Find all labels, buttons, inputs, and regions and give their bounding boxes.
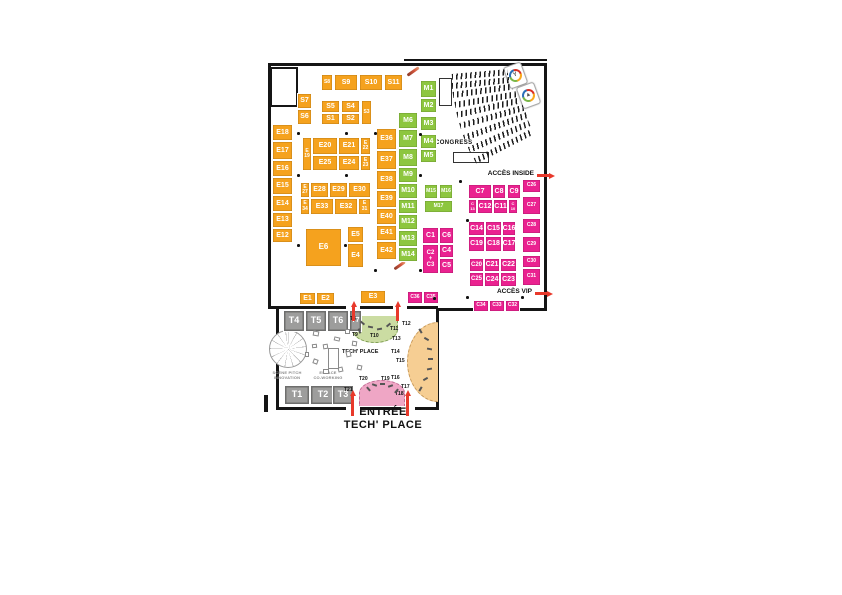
coworking-furniture <box>312 358 318 364</box>
coworking-furniture <box>328 348 339 369</box>
coworking-furniture <box>312 344 317 349</box>
booth-E4[interactable]: E4 <box>347 243 364 268</box>
booth-E22[interactable]: E22 <box>360 137 371 155</box>
booth-E37[interactable]: E37 <box>376 150 397 170</box>
pillar-dot <box>345 132 348 135</box>
booth-C5[interactable]: C5 <box>439 258 454 274</box>
pitch-stage-circle <box>269 330 307 368</box>
booth-E32[interactable]: E32 <box>334 198 358 215</box>
floor-plan: Y ▲ CONGRESS ACCÈS INSIDE ACCÈS VIP TECH… <box>0 0 842 595</box>
booth-E23[interactable]: E23 <box>360 155 371 171</box>
coworking-furniture <box>357 365 363 371</box>
booth-M1[interactable]: M1 <box>420 80 437 98</box>
booth-C4[interactable]: C4 <box>439 244 454 258</box>
booth-M17[interactable]: M17 <box>424 200 453 213</box>
booth-label-T15[interactable]: T15 <box>396 358 405 364</box>
booth-label-T9[interactable]: T9 <box>352 332 358 338</box>
booth-M8[interactable]: M8 <box>398 148 418 167</box>
booth-C13[interactable]: C13 <box>468 199 477 214</box>
pillar-dot <box>419 174 422 177</box>
booth-C34[interactable]: C34 <box>473 300 489 312</box>
booth-E18[interactable]: E18 <box>272 124 293 141</box>
pillar-dot <box>419 269 422 272</box>
booth-M4[interactable]: M4 <box>420 134 437 149</box>
coworking-furniture <box>305 352 309 357</box>
booth-M15[interactable]: M15 <box>424 184 438 199</box>
booth-C25[interactable]: C25 <box>469 272 484 287</box>
booth-C2-C3[interactable]: C2+C3 <box>422 244 439 274</box>
booth-M2[interactable]: M2 <box>420 98 437 113</box>
booth-C6[interactable]: C6 <box>439 227 454 244</box>
booth-C11[interactable]: C11 <box>493 199 508 214</box>
booth-C14[interactable]: C14 <box>468 221 485 236</box>
pillar-dot <box>344 244 347 247</box>
scene-pitch-line2: INNOVATION <box>262 375 312 380</box>
booth-C30[interactable]: C30 <box>522 255 541 268</box>
tech-place-zone-orange[interactable] <box>407 322 438 402</box>
booth-E16[interactable]: E16 <box>272 160 293 177</box>
booth-E21[interactable]: E21 <box>338 137 360 155</box>
pillar-dot <box>374 132 377 135</box>
booth-S7[interactable]: S7 <box>297 93 312 109</box>
booth-C31[interactable]: C31 <box>522 268 541 286</box>
booth-label-T20[interactable]: T20 <box>359 376 368 382</box>
entrance-arrow-icon <box>404 390 411 416</box>
booth-C24[interactable]: C24 <box>484 272 500 287</box>
booth-C35[interactable]: C35 <box>423 291 439 304</box>
booth-M3[interactable]: M3 <box>420 116 437 131</box>
booth-label-T14[interactable]: T14 <box>391 349 400 355</box>
booth-T5[interactable]: T5 <box>305 310 327 332</box>
booth-C15[interactable]: C15 <box>485 221 502 236</box>
booth-C33[interactable]: C33 <box>489 300 505 312</box>
booth-M6[interactable]: M6 <box>398 112 418 129</box>
booth-E41[interactable]: E41 <box>376 225 397 241</box>
booth-S5[interactable]: S5 <box>321 100 340 113</box>
booth-E1[interactable]: E1 <box>299 292 316 305</box>
entrance-arrow-icon <box>350 301 357 321</box>
booth-C32[interactable]: C32 <box>505 300 520 312</box>
booth-C8[interactable]: C8 <box>492 184 506 199</box>
booth-E34[interactable]: E34 <box>300 198 310 215</box>
booth-C19[interactable]: C19 <box>468 236 485 252</box>
entrance-arrow-icon <box>394 301 401 321</box>
booth-E6[interactable]: E6 <box>305 228 342 267</box>
booth-C36[interactable]: C36 <box>407 291 423 304</box>
booth-C17[interactable]: C17 <box>502 236 516 252</box>
booth-M12[interactable]: M12 <box>398 214 418 230</box>
coworking-furniture <box>345 351 351 358</box>
pillar-dot <box>466 296 469 299</box>
booth-E15[interactable]: E15 <box>272 177 293 195</box>
booth-C23[interactable]: C23 <box>500 272 517 287</box>
pillar-dot <box>297 132 300 135</box>
booth-C29[interactable]: C29 <box>522 236 541 253</box>
pillar-dot <box>433 297 436 300</box>
booth-C16[interactable]: C16 <box>502 221 516 236</box>
congress-label: CONGRESS <box>435 140 473 146</box>
wall-mid-2 <box>360 306 393 309</box>
booth-C26[interactable]: C26 <box>522 179 541 193</box>
booth-S4[interactable]: S4 <box>341 100 360 113</box>
wall-mid-1 <box>268 306 346 309</box>
booth-E20[interactable]: E20 <box>312 137 338 155</box>
booth-M11[interactable]: M11 <box>398 199 418 214</box>
booth-E3[interactable]: E3 <box>360 290 386 304</box>
booth-C22[interactable]: C22 <box>500 258 517 272</box>
booth-E25[interactable]: E25 <box>312 155 338 171</box>
booth-T1[interactable]: T1 <box>284 385 310 405</box>
booth-T4[interactable]: T4 <box>283 310 305 332</box>
coworking-line2: CO-WORKING <box>308 375 348 380</box>
booth-M14[interactable]: M14 <box>398 247 418 262</box>
booth-C27[interactable]: C27 <box>522 196 541 215</box>
wall-mid-3 <box>407 306 438 309</box>
booth-S6[interactable]: S6 <box>297 109 312 125</box>
booth-C20[interactable]: C20 <box>469 258 484 272</box>
summit-badge-icon: ▲ <box>523 90 535 102</box>
coworking-furniture <box>334 336 341 341</box>
booth-S2[interactable]: S2 <box>341 113 360 125</box>
booth-E19[interactable]: E19 <box>302 137 312 171</box>
booth-E17[interactable]: E17 <box>272 141 293 160</box>
booth-S1[interactable]: S1 <box>321 113 340 125</box>
booth-E39[interactable]: E39 <box>376 190 397 208</box>
booth-E12[interactable]: E12 <box>272 228 293 243</box>
summit-badge-ring: ▲ <box>520 87 537 104</box>
acces-vip-label: ACCÈS VIP <box>468 288 532 295</box>
booth-E28[interactable]: E28 <box>310 182 329 198</box>
booth-S10[interactable]: S10 <box>359 74 383 91</box>
booth-S9[interactable]: S9 <box>334 74 358 91</box>
zone-stand-marker <box>428 358 433 360</box>
wall-top-outer <box>404 59 547 61</box>
booth-C18[interactable]: C18 <box>485 236 502 252</box>
booth-E2[interactable]: E2 <box>316 292 335 305</box>
pillar-dot <box>297 174 300 177</box>
booth-E36[interactable]: E36 <box>376 128 397 150</box>
pillar-dot <box>466 219 469 222</box>
booth-M10[interactable]: M10 <box>398 183 418 199</box>
coworking-furniture <box>313 331 320 337</box>
wall-right <box>544 63 547 311</box>
wall-hook <box>264 395 268 412</box>
booth-E24[interactable]: E24 <box>338 155 360 171</box>
pillar-dot <box>297 244 300 247</box>
booth-E5[interactable]: E5 <box>347 226 364 243</box>
coworking-furniture <box>323 369 329 374</box>
booth-C28[interactable]: C28 <box>522 218 541 234</box>
booth-S11[interactable]: S11 <box>384 74 403 91</box>
pillar-dot <box>345 174 348 177</box>
booth-C1[interactable]: C1 <box>422 227 439 244</box>
booth-label-T16[interactable]: T16 <box>391 375 400 381</box>
zone-stand-marker <box>380 383 385 385</box>
booth-label-T13[interactable]: T13 <box>392 336 401 342</box>
storage-room <box>270 67 298 107</box>
booth-M5[interactable]: M5 <box>420 149 437 163</box>
booth-E42[interactable]: E42 <box>376 241 397 260</box>
booth-C21[interactable]: C21 <box>484 258 500 272</box>
booth-M9[interactable]: M9 <box>398 167 418 183</box>
booth-S3[interactable]: S3 <box>361 100 372 125</box>
booth-label-T12[interactable]: T12 <box>402 321 411 327</box>
access-arrow-icon <box>537 172 555 179</box>
pillar-dot <box>459 180 462 183</box>
booth-E31[interactable]: E31 <box>358 198 371 215</box>
booth-C9[interactable]: C9 <box>507 184 521 199</box>
pillar-dot <box>419 133 422 136</box>
booth-E29[interactable]: E29 <box>329 182 348 198</box>
booth-E13[interactable]: E13 <box>272 212 293 228</box>
wall-top <box>268 63 547 66</box>
booth-label-T11[interactable]: T11 <box>390 326 398 332</box>
trophy-badge-icon: Y <box>510 70 522 82</box>
booth-C7[interactable]: C7 <box>468 184 492 199</box>
booth-E30[interactable]: E30 <box>348 182 371 198</box>
booth-S8[interactable]: S8 <box>321 74 333 91</box>
entree-line2: TECH' PLACE <box>335 419 431 431</box>
booth-E40[interactable]: E40 <box>376 208 397 225</box>
booth-C12[interactable]: C12 <box>477 199 493 214</box>
acces-inside-label: ACCÈS INSIDE <box>470 170 534 177</box>
booth-E33[interactable]: E33 <box>310 198 334 215</box>
congress-stage <box>439 78 452 106</box>
access-arrow-icon <box>535 290 553 297</box>
coworking-furniture <box>352 341 358 347</box>
coworking-furniture <box>345 329 350 334</box>
booth-label-T10[interactable]: T10 <box>370 333 379 339</box>
booth-C10[interactable]: C10 <box>508 199 518 214</box>
booth-M16[interactable]: M16 <box>439 184 453 199</box>
booth-label-T19[interactable]: T19 <box>381 376 390 382</box>
entrance-arrow-icon <box>349 390 356 416</box>
booth-E27[interactable]: E27 <box>300 182 310 198</box>
booth-E38[interactable]: E38 <box>376 170 397 190</box>
pillar-dot <box>521 296 524 299</box>
pencil-icon <box>407 66 420 76</box>
booth-M13[interactable]: M13 <box>398 230 418 247</box>
booth-M7[interactable]: M7 <box>398 129 418 148</box>
booth-E14[interactable]: E14 <box>272 195 293 212</box>
scene-pitch-label: SCÈNE PITCH INNOVATION <box>262 370 312 380</box>
pillar-dot <box>374 269 377 272</box>
